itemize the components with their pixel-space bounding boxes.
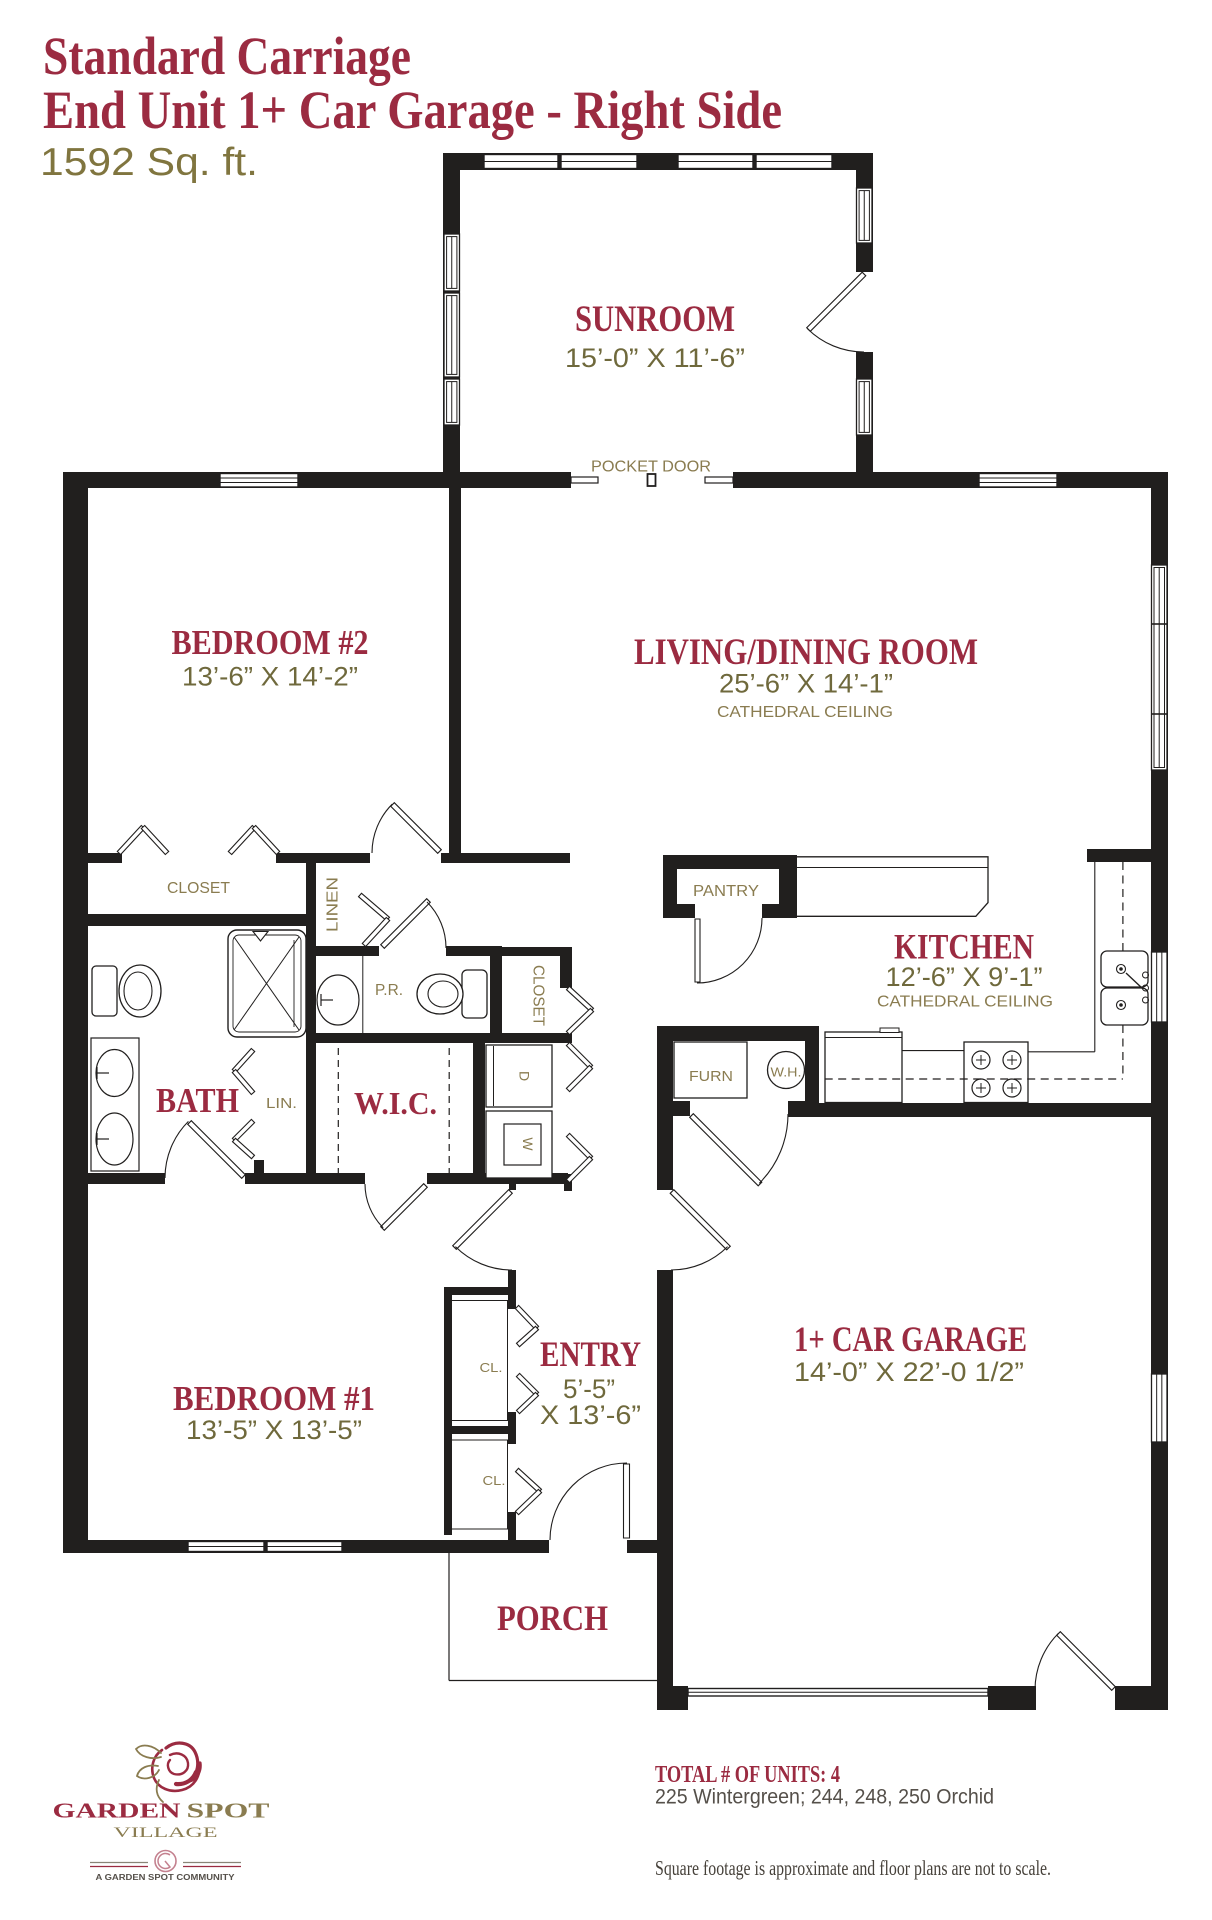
svg-text:12’-6” X 9’-1”: 12’-6” X 9’-1” <box>886 962 1043 992</box>
svg-text:CATHEDRAL CEILING: CATHEDRAL CEILING <box>717 704 893 721</box>
svg-text:D: D <box>517 1071 533 1081</box>
svg-text:P.R.: P.R. <box>375 982 403 999</box>
svg-text:Standard Carriage: Standard Carriage <box>43 26 411 86</box>
svg-text:CL.: CL. <box>480 1360 503 1375</box>
svg-text:225 Wintergreen; 244, 248, 250: 225 Wintergreen; 244, 248, 250 Orchid <box>655 1786 994 1809</box>
svg-text:FURN: FURN <box>689 1069 733 1085</box>
svg-text:A GARDEN SPOT COMMUNITY: A GARDEN SPOT COMMUNITY <box>96 1873 236 1882</box>
svg-text:CL.: CL. <box>483 1473 506 1488</box>
svg-text:ENTRY: ENTRY <box>540 1334 641 1374</box>
svg-text:BEDROOM #2: BEDROOM #2 <box>172 623 369 662</box>
svg-text:SUNROOM: SUNROOM <box>575 299 735 340</box>
svg-text:13’-6” X 14’-2”: 13’-6” X 14’-2” <box>182 662 358 692</box>
svg-text:Square footage is approximate: Square footage is approximate and floor … <box>655 1856 1051 1880</box>
svg-text:CATHEDRAL CEILING: CATHEDRAL CEILING <box>877 994 1053 1011</box>
svg-text:CLOSET: CLOSET <box>530 965 547 1027</box>
svg-text:W.H.: W.H. <box>771 1066 802 1080</box>
svg-text:LIVING/DINING ROOM: LIVING/DINING ROOM <box>634 632 978 673</box>
svg-text:PANTRY: PANTRY <box>693 883 759 900</box>
svg-text:X 13’-6”: X 13’-6” <box>540 1400 641 1430</box>
svg-text:KITCHEN: KITCHEN <box>894 927 1034 967</box>
svg-text:1592 Sq. ft.: 1592 Sq. ft. <box>40 141 258 184</box>
svg-text:W: W <box>520 1137 536 1151</box>
svg-text:15’-0” X 11’-6”: 15’-0” X 11’-6” <box>565 343 745 373</box>
svg-text:PORCH: PORCH <box>497 1598 608 1638</box>
svg-text:BATH: BATH <box>156 1081 239 1120</box>
svg-text:TOTAL # OF UNITS: 4: TOTAL # OF UNITS: 4 <box>655 1762 840 1788</box>
svg-text:SPOT: SPOT <box>187 1799 270 1823</box>
svg-text:1+ CAR GARAGE: 1+ CAR GARAGE <box>794 1319 1027 1359</box>
svg-text:25’-6” X 14’-1”: 25’-6” X 14’-1” <box>719 669 893 699</box>
svg-text:LINEN: LINEN <box>325 877 342 932</box>
svg-text:W.I.C.: W.I.C. <box>354 1085 437 1121</box>
svg-text:CLOSET: CLOSET <box>167 880 231 897</box>
svg-text:BEDROOM #1: BEDROOM #1 <box>173 1379 375 1418</box>
svg-text:End Unit 1+ Car Garage - Right: End Unit 1+ Car Garage - Right Side <box>43 80 782 140</box>
svg-text:VILLAGE: VILLAGE <box>114 1825 218 1841</box>
svg-text:LIN.: LIN. <box>266 1096 297 1112</box>
svg-text:GARDEN: GARDEN <box>53 1799 181 1823</box>
svg-text:POCKET DOOR: POCKET DOOR <box>591 459 711 476</box>
svg-text:13’-5” X 13’-5”: 13’-5” X 13’-5” <box>186 1415 362 1445</box>
svg-text:14’-0” X 22’-0 1/2”: 14’-0” X 22’-0 1/2” <box>794 1357 1024 1387</box>
